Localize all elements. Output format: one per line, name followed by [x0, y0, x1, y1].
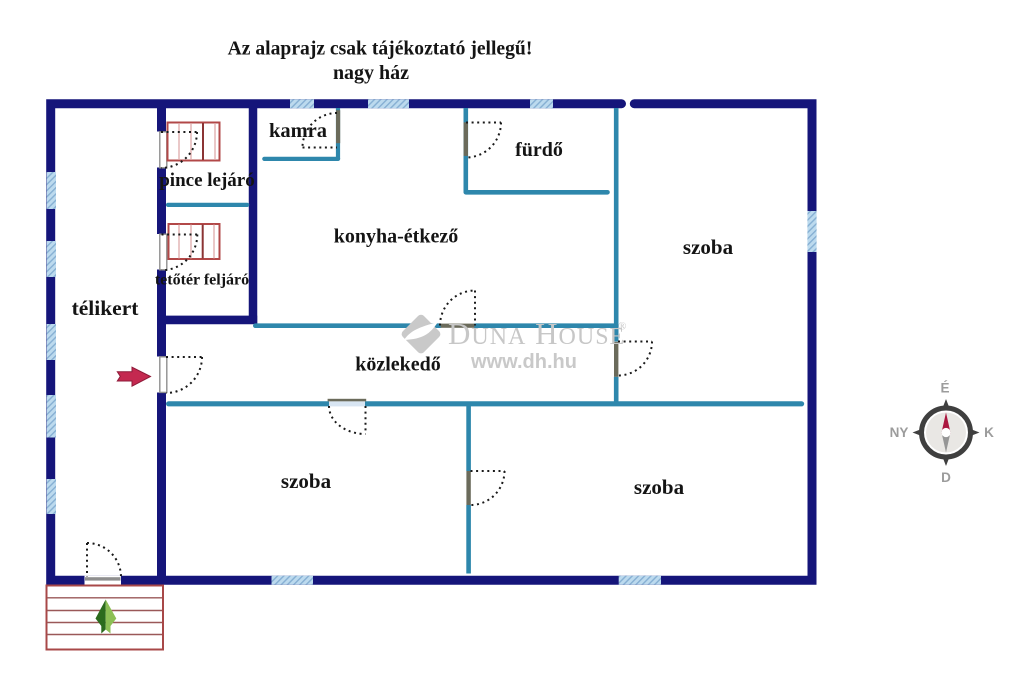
svg-text:szoba: szoba	[683, 235, 734, 259]
svg-text:®: ®	[618, 321, 626, 333]
svg-text:www.dh.hu: www.dh.hu	[470, 351, 577, 373]
svg-text:szoba: szoba	[634, 475, 685, 499]
svg-text:közlekedő: közlekedő	[355, 354, 441, 376]
svg-text:télikert: télikert	[72, 296, 140, 320]
svg-text:Az alaprajz csak tájékoztató j: Az alaprajz csak tájékoztató jellegű!	[228, 39, 533, 60]
svg-text:NY: NY	[890, 425, 909, 440]
svg-text:É: É	[940, 381, 949, 396]
svg-text:nagy ház: nagy ház	[333, 62, 409, 84]
svg-text:szoba: szoba	[281, 469, 332, 493]
svg-text:kamra: kamra	[269, 120, 327, 142]
svg-text:tetőtér feljáró: tetőtér feljáró	[155, 272, 249, 289]
svg-text:K: K	[984, 425, 994, 440]
svg-text:D: D	[941, 470, 951, 485]
svg-text:pince lejáró: pince lejáró	[159, 170, 255, 191]
svg-text:konyha-étkező: konyha-étkező	[334, 226, 458, 248]
svg-text:DUNA HOUSE: DUNA HOUSE	[448, 316, 625, 351]
svg-text:fürdő: fürdő	[515, 139, 563, 161]
